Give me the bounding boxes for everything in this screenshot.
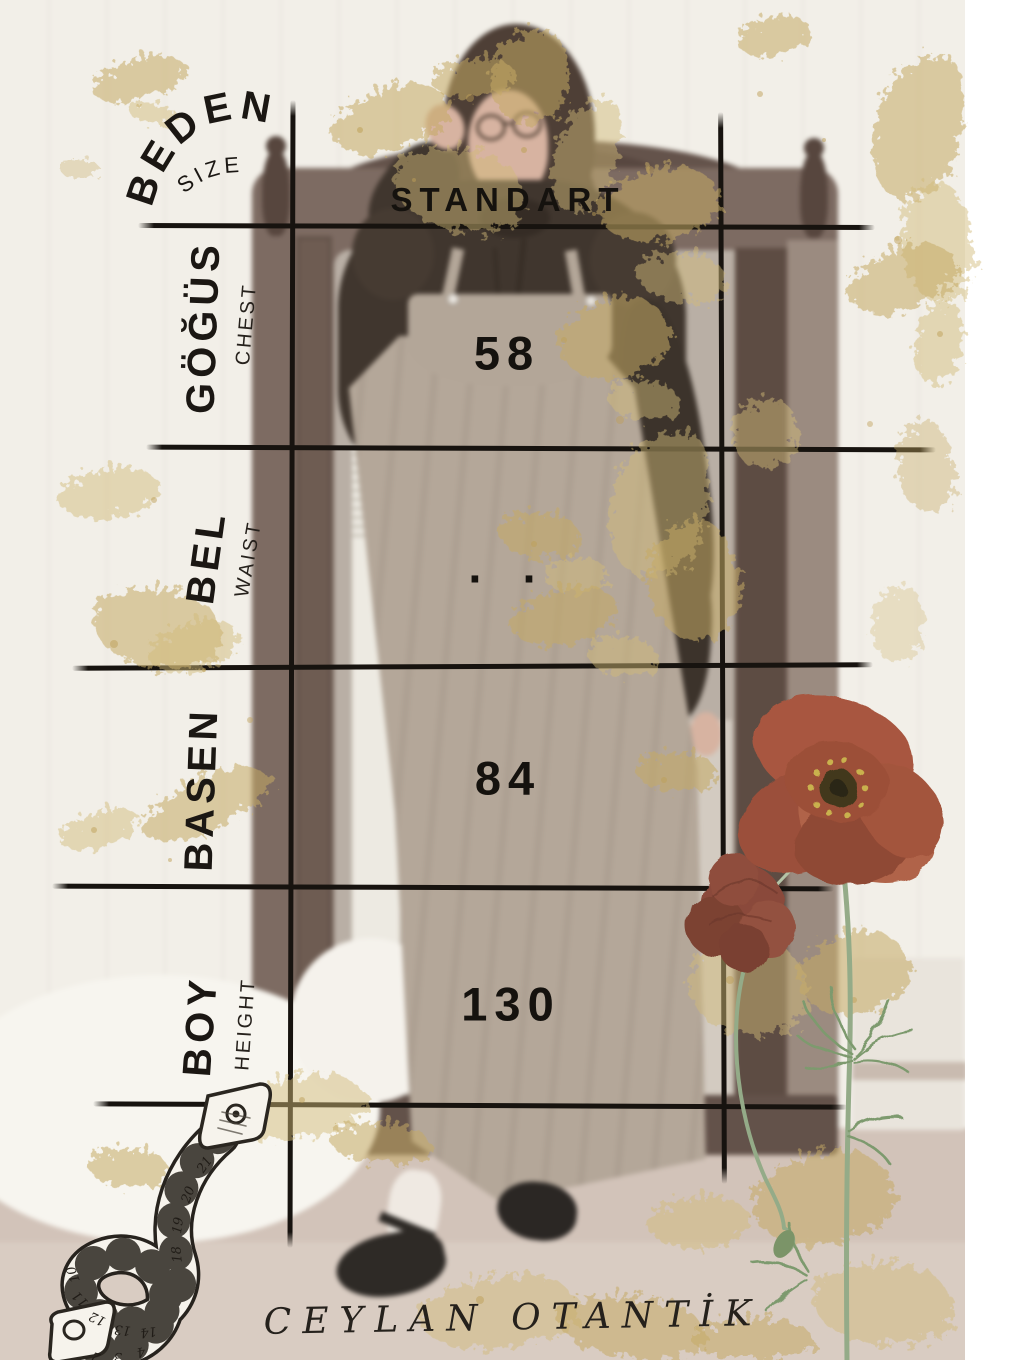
value-height: 130 (461, 977, 560, 1032)
row-label-chest-tr: GÖĞÜS (178, 239, 229, 414)
value-chest: 58 (474, 326, 540, 381)
value-waist: . . (468, 539, 549, 594)
svg-text:18: 18 (169, 1245, 185, 1263)
svg-text:3: 3 (113, 1349, 122, 1360)
value-size: STANDART (390, 181, 625, 219)
svg-text:14: 14 (139, 1323, 157, 1340)
poppy-flower-illustration (600, 660, 1020, 1360)
row-label-size-en: SIZE (172, 152, 244, 198)
brand-name: CEYLAN OTANTİK (263, 1293, 762, 1343)
row-label-height-tr: BOY (175, 974, 227, 1079)
row-label-hip-tr: BASEN (177, 706, 228, 873)
row-label-size: BEDEN SIZE (58, 42, 328, 252)
row-label-size-tr: BEDEN (118, 83, 280, 210)
svg-text:19: 19 (170, 1216, 187, 1234)
value-hip: 84 (475, 751, 541, 806)
svg-text:BEDEN: BEDEN (118, 83, 280, 210)
svg-text:SIZE: SIZE (172, 152, 244, 198)
svg-text:13: 13 (114, 1321, 132, 1338)
size-chart-graphic: 21 20 19 18 14 13 12 11 10 4 3 2 (0, 0, 1020, 1360)
